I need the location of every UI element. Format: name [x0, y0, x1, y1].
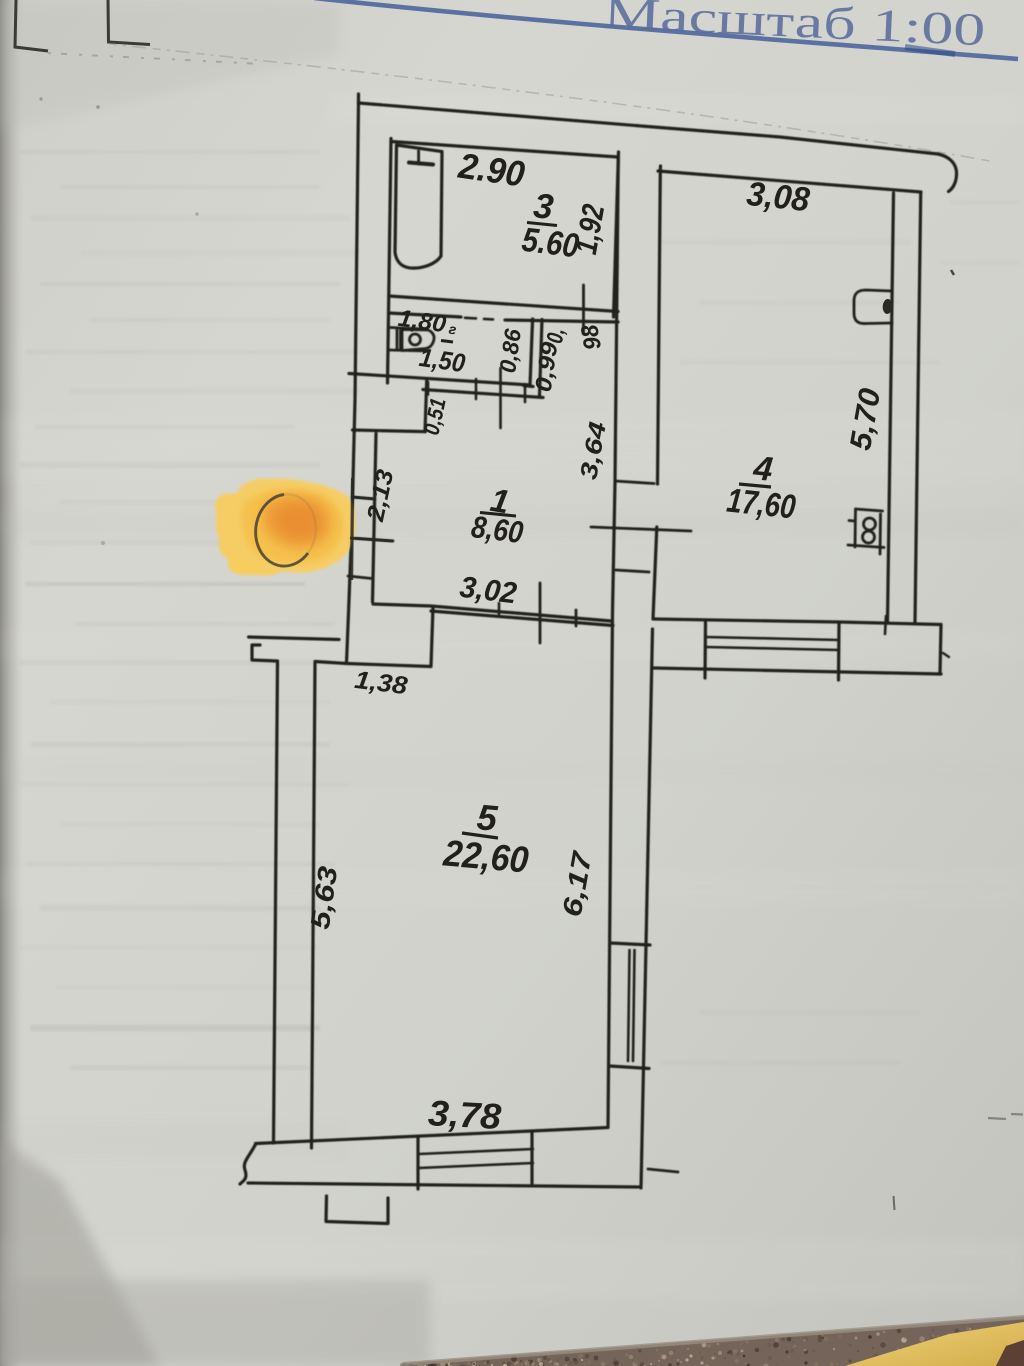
svg-text:8,60: 8,60 [469, 509, 525, 550]
svg-text:3,08: 3,08 [745, 175, 812, 219]
svg-text:4: 4 [751, 449, 775, 489]
svg-text:3,02: 3,02 [458, 571, 519, 611]
svg-text:22,60: 22,60 [441, 832, 531, 880]
svg-text:3,78: 3,78 [427, 1092, 502, 1137]
svg-text:17,60: 17,60 [725, 482, 798, 527]
svg-text:98: 98 [576, 322, 607, 352]
svg-text:1,50: 1,50 [417, 342, 467, 378]
